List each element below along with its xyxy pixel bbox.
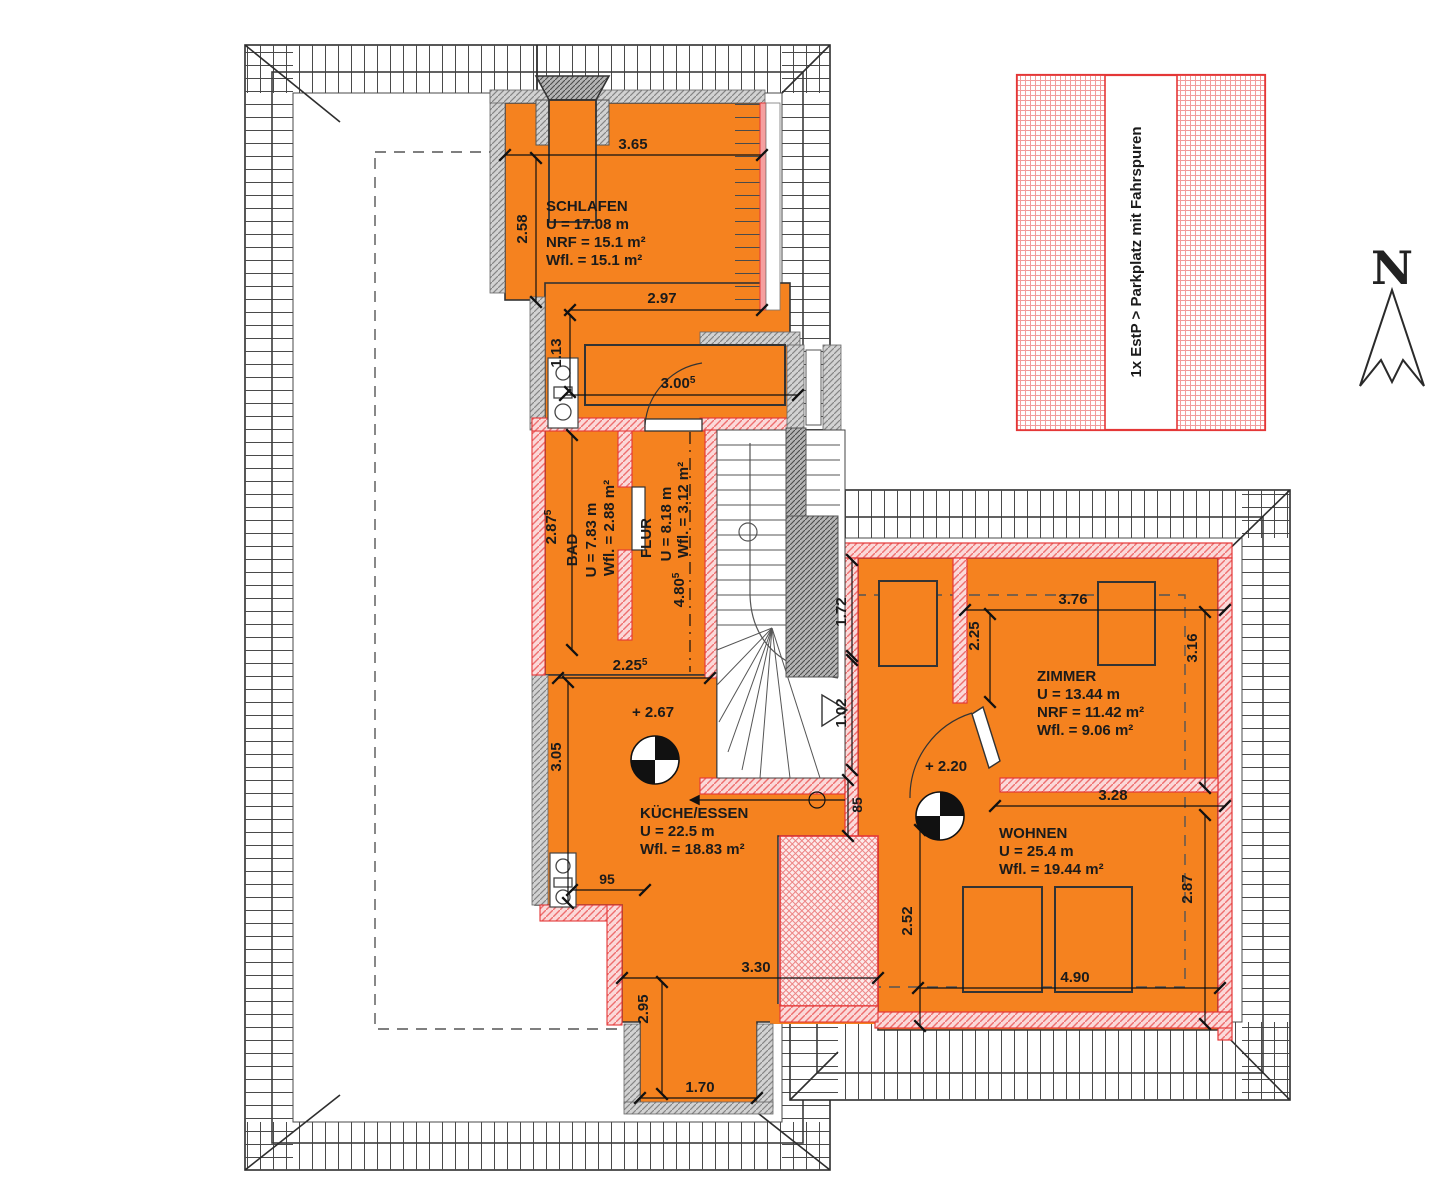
level-kueche: + 2.67 xyxy=(632,704,674,721)
dim-schlafen-step: 1.13 xyxy=(548,338,565,367)
schlafen-u: U = 17.08 m xyxy=(546,216,629,233)
furniture-diele xyxy=(879,581,937,666)
schlafen-wfl: Wfl. = 15.1 m² xyxy=(546,252,642,269)
room-label-schlafen: SCHLAFEN xyxy=(546,198,628,215)
room-label-kueche: KÜCHE/ESSEN xyxy=(640,805,748,822)
zimmer-nrf: NRF = 11.42 m² xyxy=(1037,704,1144,721)
kueche-u: U = 22.5 m xyxy=(640,823,715,840)
floorplan-drawing: SCHLAFEN U = 17.08 m NRF = 15.1 m² Wfl. … xyxy=(0,0,1440,1182)
room-label-zimmer: ZIMMER xyxy=(1037,668,1096,685)
dim-stair-lower: 1.02 xyxy=(833,698,850,727)
room-label-wohnen: WOHNEN xyxy=(999,825,1067,842)
dim-zimmer-top: 3.76 xyxy=(1058,591,1087,608)
zimmer-wfl: Wfl. = 9.06 m² xyxy=(1037,722,1133,739)
furniture-zimmer xyxy=(1098,582,1155,665)
wohnen-u: U = 25.4 m xyxy=(999,843,1074,860)
dim-wohnen-left: 2.52 xyxy=(899,906,916,935)
kueche-wfl: Wfl. = 18.83 m² xyxy=(640,841,745,858)
dim-chimney-w: 1.70 xyxy=(685,1079,714,1096)
floorplan-page: SCHLAFEN U = 17.08 m NRF = 15.1 m² Wfl. … xyxy=(0,0,1440,1182)
kitchen-fixtures xyxy=(550,853,576,907)
bad-wfl: Wfl. = 2.88 m² xyxy=(601,480,618,576)
dim-kueche-small: 95 xyxy=(599,871,615,887)
dim-schlafen-inner: 2.97 xyxy=(647,290,676,307)
dim-wohnen-top: 3.28 xyxy=(1098,787,1127,804)
zimmer-u: U = 13.44 m xyxy=(1037,686,1120,703)
wohnen-wfl: Wfl. = 19.44 m² xyxy=(999,861,1104,878)
parking-legend: 1x EstP > Parkplatz mit Fahrspuren xyxy=(1017,75,1265,430)
dim-zimmer-left: 2.25 xyxy=(966,621,983,650)
survey-symbol-kueche xyxy=(631,736,679,784)
furniture-wohnen-1 xyxy=(963,887,1042,992)
dim-schlafen-left: 2.58 xyxy=(514,214,531,243)
dim-kueche-left: 3.05 xyxy=(548,742,565,771)
flur-u: U = 8.18 m xyxy=(658,487,675,562)
north-arrow-glyph xyxy=(1360,290,1424,386)
dim-wohnen-bottom: 4.90 xyxy=(1060,969,1089,986)
dim-hall-small: 85 xyxy=(849,797,865,813)
dim-wohnen-right: 2.87 xyxy=(1179,874,1196,903)
flur-wfl: Wfl. = 3.12 m² xyxy=(675,462,692,558)
north-arrow: N xyxy=(1360,241,1424,386)
dim-stair-upper: 1.72 xyxy=(833,597,850,626)
stairwell xyxy=(717,428,847,778)
door-schlafen-leaf xyxy=(645,419,702,431)
schlafen-nrf: NRF = 15.1 m² xyxy=(546,234,646,251)
balcony xyxy=(780,836,878,1022)
dim-zimmer-right: 3.16 xyxy=(1184,633,1201,662)
room-label-flur: FLUR xyxy=(638,518,655,558)
bad-u: U = 7.83 m xyxy=(583,503,600,578)
level-diele: + 2.20 xyxy=(925,758,967,775)
dim-kueche-bottom: 3.30 xyxy=(741,959,770,976)
dim-kueche-ext: 2.95 xyxy=(635,994,652,1023)
room-label-bad: BAD xyxy=(564,534,581,567)
dim-schlafen-top: 3.65 xyxy=(618,136,647,153)
parking-label: 1x EstP > Parkplatz mit Fahrspuren xyxy=(1128,126,1145,377)
survey-symbol-wohnen xyxy=(916,792,964,840)
